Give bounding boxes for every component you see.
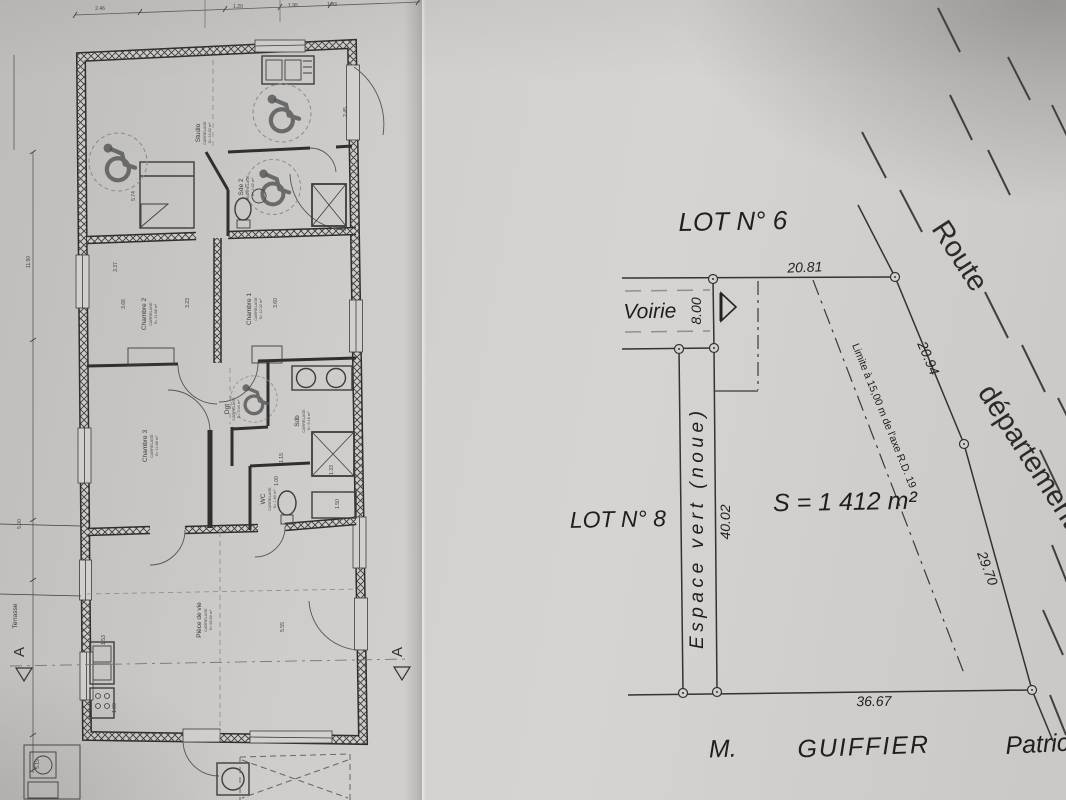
svg-text:Chambre 3: Chambre 3	[142, 430, 149, 463]
svg-text:11.50: 11.50	[26, 256, 32, 268]
voirie-label: Voirie	[623, 300, 676, 324]
svg-text:2.45: 2.45	[343, 107, 349, 117]
survey-points	[675, 273, 1037, 698]
access-arrow	[721, 293, 736, 321]
limite-label: Limite à 15,00 m de l'axe R.D. 19	[849, 342, 918, 490]
svg-text:CARRELAGE: CARRELAGE	[246, 175, 250, 199]
svg-text:1.15: 1.15	[279, 453, 285, 463]
svg-text:3.37: 3.37	[113, 262, 119, 272]
lot6-label: LOT N° 6	[678, 205, 788, 237]
svg-text:S= 58.50 m²: S= 58.50 m²	[209, 609, 213, 631]
room-labels: Studio CARRELAGE S= 24.62 m² Sde 2 CARRE…	[12, 121, 311, 638]
svg-text:3.23: 3.23	[185, 298, 191, 308]
svg-text:Pièce de vie: Pièce de vie	[196, 602, 203, 638]
route-word1: Route	[925, 215, 994, 297]
svg-text:1.95: 1.95	[288, 3, 298, 9]
svg-text:Terrasse: Terrasse	[12, 603, 19, 628]
floor-plan-sheet: Studio CARRELAGE S= 24.62 m² Sde 2 CARRE…	[0, 0, 422, 800]
plot-plan-sheet: LOT N° 6 LOT N° 8 Voirie S = 1 412 m² Es…	[422, 0, 1066, 800]
paper-fold-highlight	[422, 0, 426, 800]
garage-dashed-outline	[240, 754, 350, 800]
svg-text:1.50: 1.50	[335, 499, 341, 509]
owner-title: M.	[708, 735, 737, 764]
svg-text:Dgt: Dgt	[224, 404, 231, 414]
interior-walls	[87, 146, 356, 532]
dim-south: 36.67	[856, 693, 893, 710]
svg-text:S= 1.80 m²: S= 1.80 m²	[273, 489, 277, 508]
dim-road-lower: 29.70	[974, 548, 1001, 588]
svg-text:CARRELAGE: CARRELAGE	[203, 121, 207, 145]
wall-openings	[76, 40, 368, 743]
room-label-dgt: Dgt CARRELAGE S= 5.04 m²	[224, 397, 241, 421]
owner-last-name: GUIFFIER	[797, 731, 931, 764]
svg-text:Chambre 1: Chambre 1	[246, 293, 253, 326]
section-markers: A A	[10, 647, 410, 681]
svg-text:S= 11.88 m²: S= 11.88 m²	[154, 303, 158, 324]
room-label-chambre1: Chambre 1 CARRELAGE S= 12.02 m²	[246, 293, 263, 326]
dim-road-upper: 20.94	[914, 338, 943, 378]
svg-text:5.19: 5.19	[35, 759, 41, 769]
svg-text:5.00: 5.00	[17, 519, 23, 529]
lot8-label: LOT N° 8	[570, 505, 667, 533]
svg-text:S= 4.62 m²: S= 4.62 m²	[251, 177, 255, 196]
room-label-chambre2: Chambre 2 CARRELAGE S= 11.88 m²	[141, 298, 158, 331]
svg-text:S= 12.02 m²: S= 12.02 m²	[259, 298, 263, 320]
svg-text:1.00: 1.00	[274, 476, 280, 486]
dim-west: 40.02	[717, 504, 733, 539]
svg-text:CARRELAGE: CARRELAGE	[232, 397, 236, 421]
svg-text:5.74: 5.74	[131, 191, 137, 201]
road-centerline-dashes	[862, 8, 1066, 735]
svg-text:CARRELAGE: CARRELAGE	[302, 409, 306, 433]
owner-first-name: Patrick	[1005, 728, 1066, 760]
room-label-piece-de-vie: Pièce de vie CARRELAGE S= 58.50 m²	[196, 602, 213, 638]
svg-text:S= 11.88 m²: S= 11.88 m²	[155, 435, 159, 456]
svg-text:3.66: 3.66	[121, 299, 127, 309]
svg-text:CARRELAGE: CARRELAGE	[204, 608, 208, 632]
svg-text:CARRELAGE: CARRELAGE	[150, 434, 154, 458]
svg-text:S= 5.04 m²: S= 5.04 m²	[237, 399, 241, 418]
room-label-studio: Studio CARRELAGE S= 24.62 m²	[195, 121, 212, 145]
svg-text:3.60: 3.60	[273, 298, 279, 308]
surface-label: S = 1 412 m²	[773, 487, 919, 518]
svg-text:1.43: 1.43	[327, 2, 337, 8]
svg-text:Studio: Studio	[195, 123, 202, 142]
svg-text:1.53: 1.53	[101, 635, 107, 645]
room-label-terrasse: Terrasse	[12, 603, 19, 628]
section-letter-left: A	[11, 647, 28, 657]
paper-fold-shadow	[404, 0, 422, 800]
svg-text:S= 5.18 m²: S= 5.18 m²	[307, 411, 311, 430]
outer-walls	[81, 44, 363, 740]
dim-access-width: 8.00	[688, 297, 704, 324]
svg-text:5.55: 5.55	[280, 622, 286, 632]
room-label-chambre3: Chambre 3 CARRELAGE S= 11.88 m²	[142, 430, 159, 463]
room-label-wc: WC CARRELAGE S= 1.80 m²	[260, 487, 277, 511]
svg-text:Sde 2: Sde 2	[238, 178, 245, 195]
route-word2: départementale	[971, 379, 1066, 565]
svg-text:WC: WC	[260, 493, 267, 504]
svg-text:CARRELAGE: CARRELAGE	[254, 297, 258, 321]
svg-text:1.33: 1.33	[329, 465, 335, 475]
svg-text:2.46: 2.46	[95, 6, 105, 12]
svg-text:Sdb: Sdb	[294, 415, 301, 427]
svg-text:CARRELAGE: CARRELAGE	[268, 487, 272, 511]
room-label-sdb: Sdb CARRELAGE S= 5.18 m²	[294, 409, 311, 433]
svg-text:Chambre 2: Chambre 2	[141, 298, 148, 331]
espace-vert-label: Espace vert (noue)	[687, 411, 708, 649]
photo-of-plans: Studio CARRELAGE S= 24.62 m² Sde 2 CARRE…	[0, 0, 1066, 800]
svg-text:1.20: 1.20	[233, 4, 243, 10]
svg-text:1.00: 1.00	[112, 703, 118, 713]
dim-top: 20.81	[786, 258, 823, 275]
room-label-sde2: Sde 2 CARRELAGE S= 4.62 m²	[238, 175, 255, 199]
svg-text:CARRELAGE: CARRELAGE	[149, 302, 153, 326]
svg-text:S= 24.62 m²: S= 24.62 m²	[208, 122, 212, 144]
owner-name: M. GUIFFIER Patrick	[708, 728, 1066, 764]
